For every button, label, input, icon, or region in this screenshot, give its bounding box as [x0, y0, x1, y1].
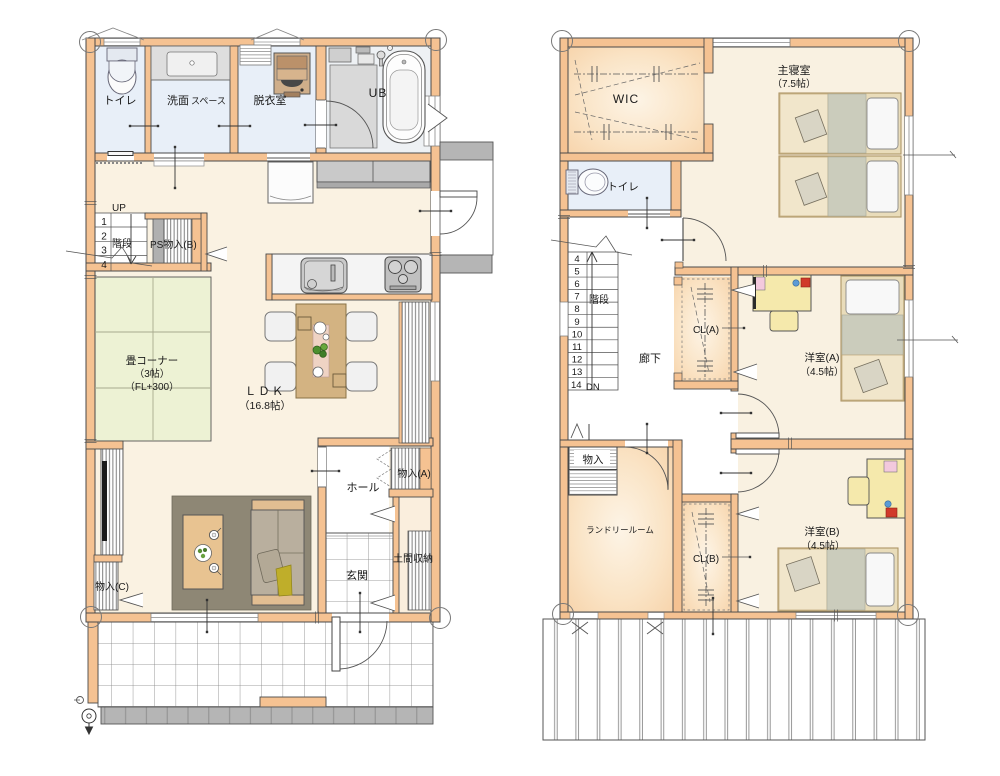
svg-text:CL(B): CL(B) [693, 554, 719, 565]
svg-text:9: 9 [574, 317, 579, 328]
svg-text:DN: DN [586, 382, 600, 393]
svg-text:CL(A): CL(A) [693, 325, 719, 336]
svg-text:洋室(B): 洋室(B) [805, 525, 840, 538]
svg-text:物入: 物入 [583, 453, 604, 466]
svg-text:7: 7 [574, 292, 579, 303]
svg-text:2: 2 [101, 231, 107, 242]
svg-text:ランドリールーム: ランドリールーム [586, 525, 654, 535]
svg-text:14: 14 [571, 380, 582, 391]
svg-text:（3帖）: （3帖） [134, 367, 170, 380]
svg-text:（4.5帖）: （4.5帖） [800, 365, 844, 378]
svg-text:物入(C): 物入(C) [95, 580, 129, 593]
svg-text:脱衣室: 脱衣室 [254, 93, 287, 107]
svg-text:1: 1 [101, 217, 107, 228]
svg-text:（16.8帖）: （16.8帖） [239, 399, 291, 412]
svg-text:6: 6 [574, 279, 579, 290]
svg-text:PS物入(B): PS物入(B) [150, 238, 197, 251]
svg-text:玄関: 玄関 [346, 568, 368, 582]
svg-text:（7.5帖）: （7.5帖） [772, 77, 816, 90]
svg-text:（FL+300）: （FL+300） [125, 381, 179, 393]
svg-text:4: 4 [574, 254, 579, 265]
svg-text:トイレ: トイレ [607, 181, 639, 193]
svg-text:洋室(A): 洋室(A) [805, 351, 840, 364]
svg-text:階段: 階段 [112, 237, 132, 250]
svg-text:土間収納: 土間収納 [393, 552, 433, 565]
svg-text:UB: UB [369, 86, 388, 100]
svg-text:10: 10 [572, 329, 583, 340]
svg-text:12: 12 [572, 354, 583, 365]
svg-text:4: 4 [101, 260, 107, 271]
svg-text:廊下: 廊下 [639, 351, 661, 365]
svg-text:物入(A): 物入(A) [397, 467, 430, 480]
svg-text:畳コーナー: 畳コーナー [126, 355, 179, 367]
svg-text:5: 5 [574, 267, 579, 278]
svg-text:洗面: 洗面 [167, 94, 189, 107]
svg-text:11: 11 [572, 342, 582, 353]
svg-text:8: 8 [574, 304, 579, 315]
svg-text:3: 3 [101, 246, 107, 257]
svg-text:階段: 階段 [589, 293, 609, 306]
svg-text:ＬＤＫ: ＬＤＫ [245, 386, 286, 398]
svg-text:主寝室: 主寝室 [778, 63, 811, 77]
svg-text:WIC: WIC [613, 92, 639, 106]
svg-text:トイレ: トイレ [104, 95, 137, 107]
svg-text:13: 13 [572, 367, 583, 378]
svg-text:（4.5帖）: （4.5帖） [801, 539, 845, 552]
svg-text:ホール: ホール [347, 481, 380, 494]
svg-text:UP: UP [112, 203, 126, 214]
svg-text:スペース: スペース [191, 96, 226, 106]
